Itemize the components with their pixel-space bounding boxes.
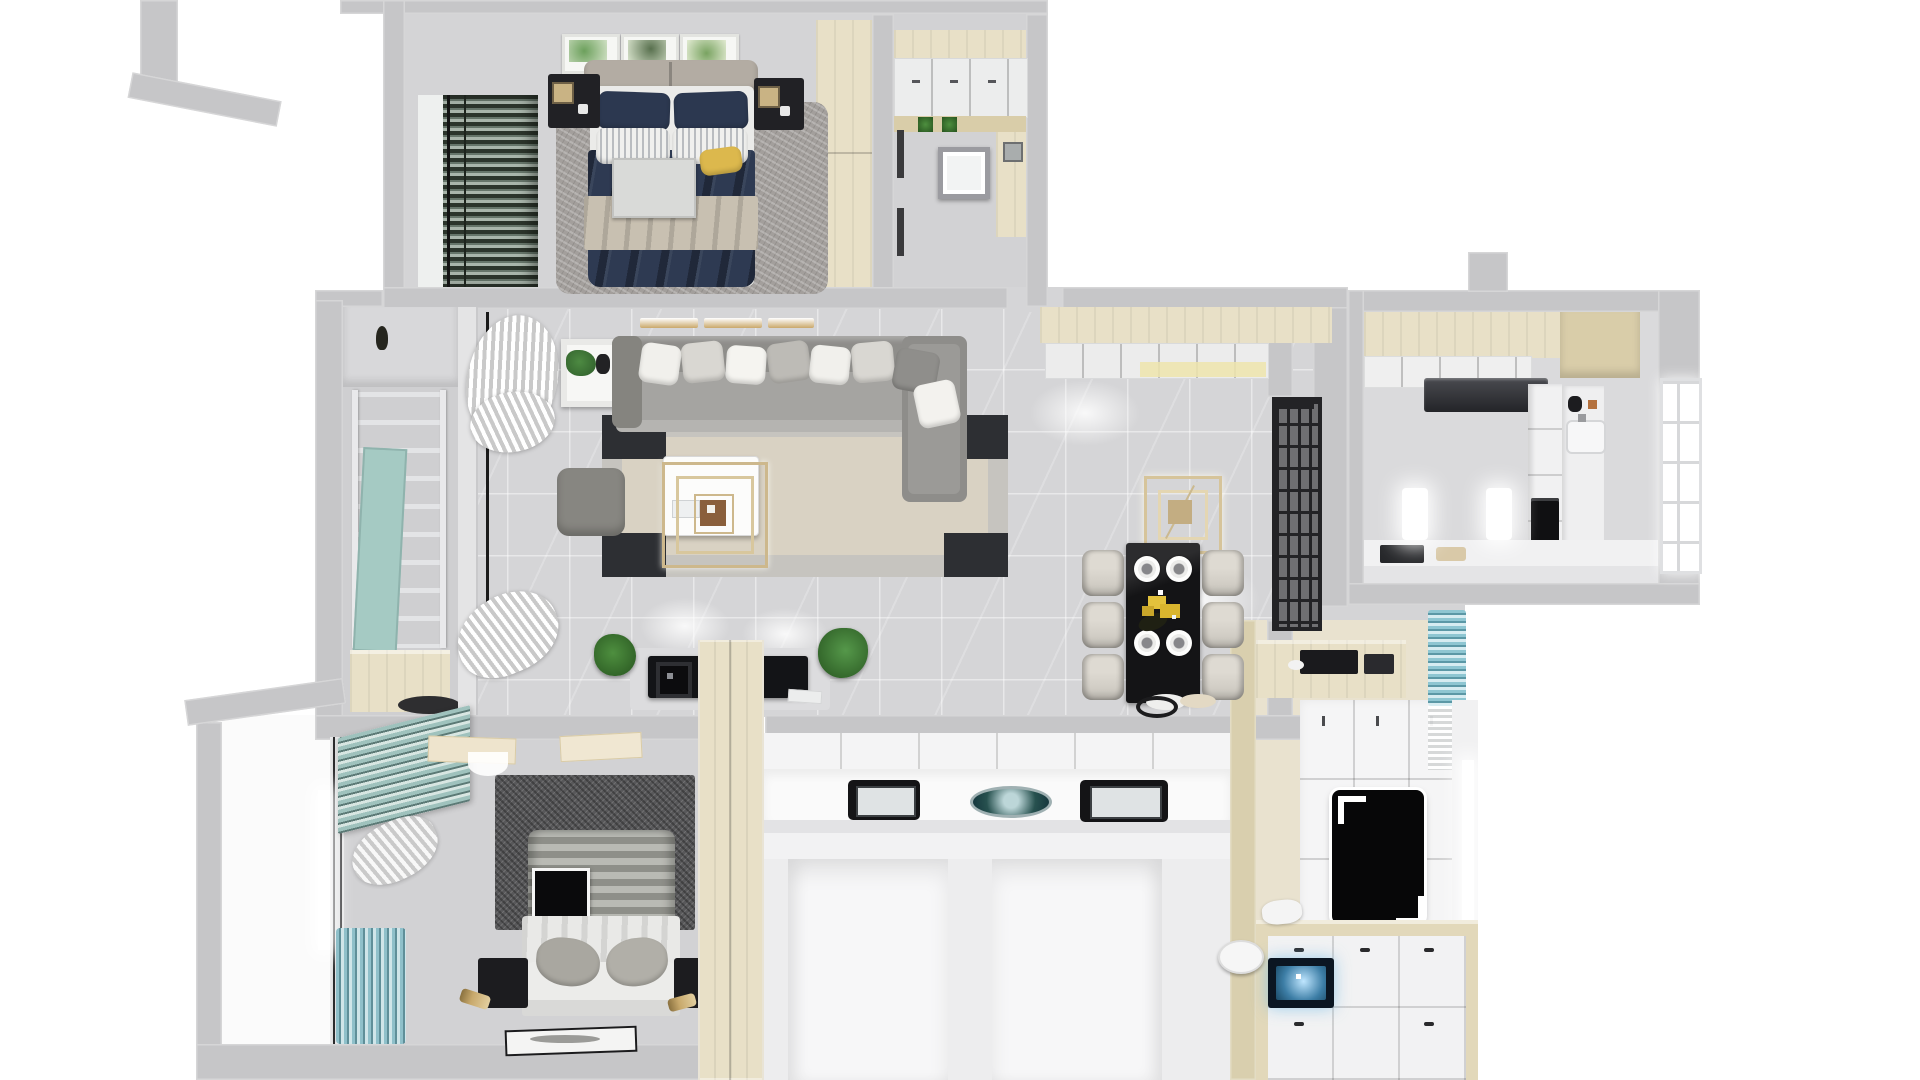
sofa-front [616,420,908,432]
dining-chair [1202,550,1244,596]
cabinet-top-panel [894,30,1026,58]
table-lamp [758,86,780,108]
art-frame-edge [704,318,762,328]
print-art [687,40,726,62]
wall-art [897,208,904,256]
paned-window [1660,378,1702,574]
bottom-counter-face [1364,566,1658,583]
cup [707,505,715,513]
entry-right-wall [1026,14,1048,307]
upper-cabinet-box [1560,312,1640,378]
under-cabinet-light [1140,362,1266,377]
plant-on-table [566,350,596,376]
speaker [656,662,692,698]
art-frame-edge [768,318,814,328]
hanging-lantern [376,326,388,350]
platform-floor [222,715,330,1048]
bed-tray [612,158,696,218]
dining-chair [1082,654,1124,700]
cutting-board [1436,547,1466,561]
chandelier-disc [1168,500,1192,524]
balcony-shelf [343,307,458,387]
pad-handle [1294,948,1304,952]
kitchen-south-wall [1348,583,1700,605]
nightstand-knob [780,106,790,116]
round-mirror [1003,142,1023,162]
lattice-top-bar [1272,397,1314,409]
potted-plant [594,634,636,676]
print-art [628,40,666,62]
bedroom-master-left-wall [383,0,405,307]
place-setting [1166,556,1192,582]
navy-pillow [597,91,670,131]
wall-art [897,130,904,178]
lattice-partition [1272,397,1322,631]
door-swing-arc [468,752,508,776]
art-frame-edge [640,318,698,328]
wardrobe-handle [1322,716,1325,726]
dining-chair [1202,654,1244,700]
sofa-cushion [850,340,895,384]
potted-plant [918,117,933,132]
cabinet-seam [729,640,731,1080]
outer-wall-diagonal [128,72,282,127]
magazine-stack [788,689,823,704]
laptop-screen [856,786,916,817]
kettle [1568,396,1582,412]
sofa-cushion [725,345,768,386]
white-bowl [1288,660,1304,670]
teal-curtain [1428,610,1466,706]
pad-handle [1360,948,1370,952]
bed-headboard [522,1000,680,1016]
sofa-cushion [808,344,852,386]
kitchen-north-wall [1348,290,1700,312]
north-wall [340,0,1048,14]
place-setting [1166,630,1192,656]
copper-pot [1588,400,1597,409]
wall-light [1402,488,1428,540]
pad-handle [1294,1022,1304,1026]
pad-handle [1424,1022,1434,1026]
yellow-flowers [1160,604,1180,618]
place-setting [1134,630,1160,656]
tall-cabinet-column [698,640,764,1080]
floorplan-render [0,0,1920,1080]
floor-art-smudge [530,1035,600,1043]
speaker-dot [667,673,673,679]
black-tray [1364,654,1394,674]
potted-plant [942,117,957,132]
print-art [569,40,607,62]
bedroom-entry-divider-wall [872,14,894,307]
rug-corner [602,533,666,577]
toilet-cubicle [992,859,1162,1080]
dining-chair [1082,602,1124,648]
wall-light [1486,488,1512,540]
closet-door-leaf [559,732,642,762]
sofa-cushion [680,340,726,384]
window-frame-line [333,737,335,1044]
wood-tray [700,500,726,526]
south-outer-wall [196,1044,756,1080]
counter-appliance [1380,545,1424,563]
ceiling-light-reflection [1030,380,1140,446]
sofa-cushion [912,378,962,430]
dining-chair [1202,602,1244,648]
petal [1172,615,1176,619]
cubicle-partition-band [764,833,1230,859]
sofa-cushion [765,339,812,384]
table-decor [596,354,610,374]
vanity-upper-cabinets [764,733,1230,769]
laptop-screen [1090,786,1162,819]
nightstand-knob [578,104,588,114]
window-sill [418,95,443,287]
kitchen-left-wall [1348,290,1364,605]
platform-left-wall [196,722,222,1050]
serving-tray-black [1136,696,1178,718]
pad-handle [1424,948,1434,952]
mirror-corner-bracket [1338,796,1366,824]
dining-chair [1082,550,1124,596]
petal [1158,590,1163,595]
table-lamp [552,82,574,104]
washing-machine [938,147,990,199]
window-blinds [443,95,538,287]
sofa-cushion [637,341,682,386]
black-tray [1300,650,1358,674]
ottoman [557,468,625,536]
yellow-flowers [1142,606,1154,616]
faucet [1578,414,1586,422]
serving-tray [1180,694,1216,708]
sink [1566,420,1606,454]
curtain-rod [464,95,466,287]
decorative-plate [970,786,1052,818]
white-stool [1218,940,1264,974]
rug-corner [944,533,1008,577]
drying-rack-rail [440,390,446,648]
wall-cabinets [894,58,1028,118]
shelf [894,116,1026,132]
wardrobe-handle [1376,716,1379,726]
balcony-left-wall [315,300,343,718]
outer-wall-stub [140,0,178,86]
navy-pillow [673,91,748,132]
cabinet-handle [912,80,920,83]
sofa-armrest [612,336,642,428]
dining-valance [1040,307,1332,343]
screen-glow [1276,966,1326,1000]
place-setting [1134,556,1160,582]
cabinet-handle [988,80,996,83]
sparkle [1296,974,1301,979]
window-light-strip [318,790,330,950]
teal-curtain [336,928,406,1044]
curtain-rod [447,95,450,287]
shower-cubicle [788,859,948,1080]
kitchen-vent-stub [1468,252,1508,292]
cabinet-handle [950,80,958,83]
